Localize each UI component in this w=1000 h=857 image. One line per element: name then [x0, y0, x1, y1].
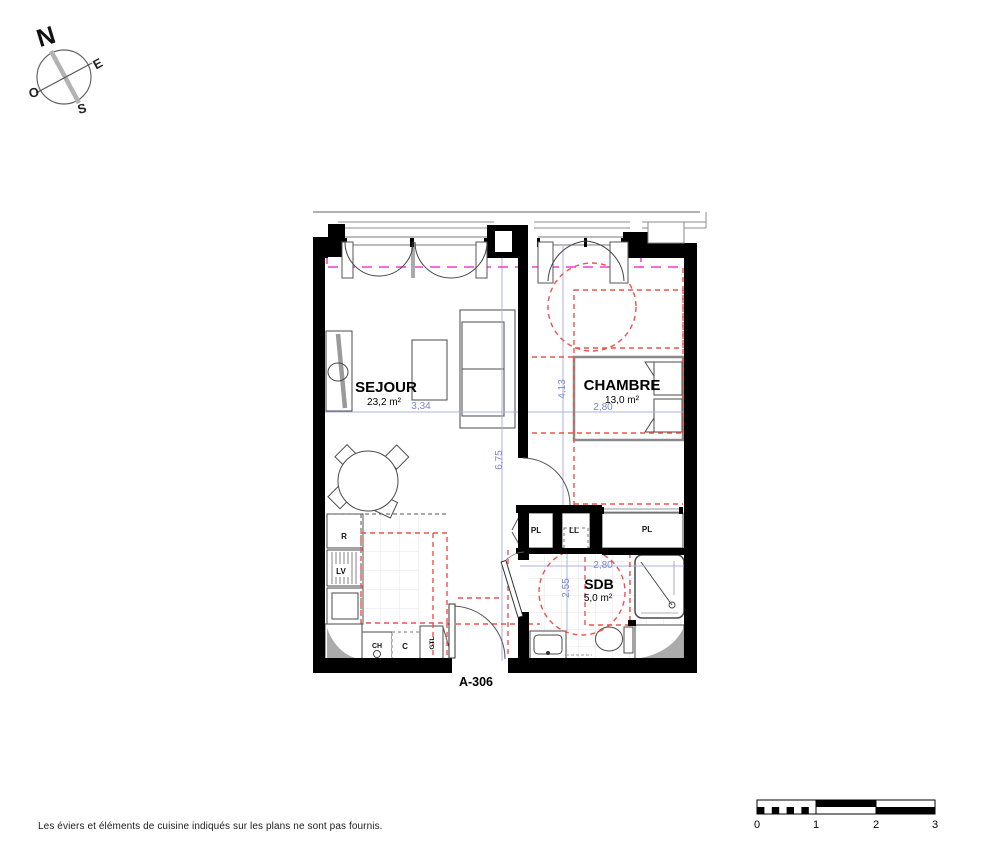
corner-unit-right	[635, 625, 684, 660]
shower	[635, 555, 684, 618]
room-label-sdb: SDB	[584, 576, 614, 592]
scale-label-2: 2	[873, 819, 879, 831]
scale-label-0: 0	[754, 819, 760, 831]
window-chambre	[537, 236, 628, 283]
room-area-sdb: 5,0 m²	[584, 593, 613, 604]
closet-label-pl-chambre: PL	[642, 525, 652, 534]
dim-chambre-height: 4,13	[557, 379, 568, 399]
kitchen-sink-bowl	[332, 593, 358, 619]
dining-table	[328, 445, 409, 518]
sofa	[460, 310, 515, 428]
corner-unit-left	[325, 624, 362, 661]
washer-label: LL	[569, 526, 579, 535]
fridge-label: R	[341, 532, 347, 541]
footer-disclaimer: Les éviers et éléments de cuisine indiqu…	[38, 821, 638, 832]
wall-sdb-west-lower	[518, 612, 529, 658]
c-unit-label: C	[402, 642, 408, 651]
compass-east-label: E	[90, 55, 105, 72]
wall-west	[313, 237, 325, 673]
compass-rose: N E O S	[27, 21, 105, 117]
dim-sejour-height: 6,75	[494, 450, 505, 470]
gtl-label: GTL	[429, 636, 436, 649]
dim-sdb-width: 2,80	[593, 560, 613, 571]
room-area-sejour: 23,2 m²	[367, 397, 402, 408]
coffee-table	[412, 340, 447, 400]
dim-sejour-width: 3,34	[411, 401, 431, 412]
closet-label-pl-hall: PL	[531, 526, 541, 535]
floor-plan-page: N E O S	[0, 0, 1000, 857]
dishwasher-label: LV	[336, 567, 346, 576]
wall-south-left	[313, 658, 452, 673]
window-corner	[648, 222, 684, 243]
scale-bar: 0 1 2 3	[754, 800, 938, 831]
scale-label-1: 1	[813, 819, 819, 831]
fridge	[327, 514, 363, 548]
door-entry	[449, 604, 505, 659]
water-heater-label: CH	[372, 643, 382, 650]
compass-south-label: S	[76, 100, 89, 117]
window-sejour	[342, 236, 487, 278]
unit-number-label: A-306	[459, 675, 493, 689]
compass-north-label: N	[33, 21, 58, 53]
room-label-chambre: CHAMBRE	[584, 377, 661, 394]
scale-label-3: 3	[932, 819, 938, 831]
wall-south-right	[508, 658, 697, 673]
door-sdb	[501, 552, 524, 617]
tv-sideboard	[326, 331, 352, 411]
floor-plan-canvas: N E O S	[0, 0, 1000, 857]
room-label-sejour: SEJOUR	[355, 379, 417, 396]
wall-sejour-chambre	[518, 242, 528, 458]
wall-east	[684, 258, 697, 673]
dim-chambre-width: 2,80	[593, 402, 613, 413]
compass-crossline	[36, 63, 92, 93]
dim-sdb-height: 2,55	[561, 578, 572, 598]
